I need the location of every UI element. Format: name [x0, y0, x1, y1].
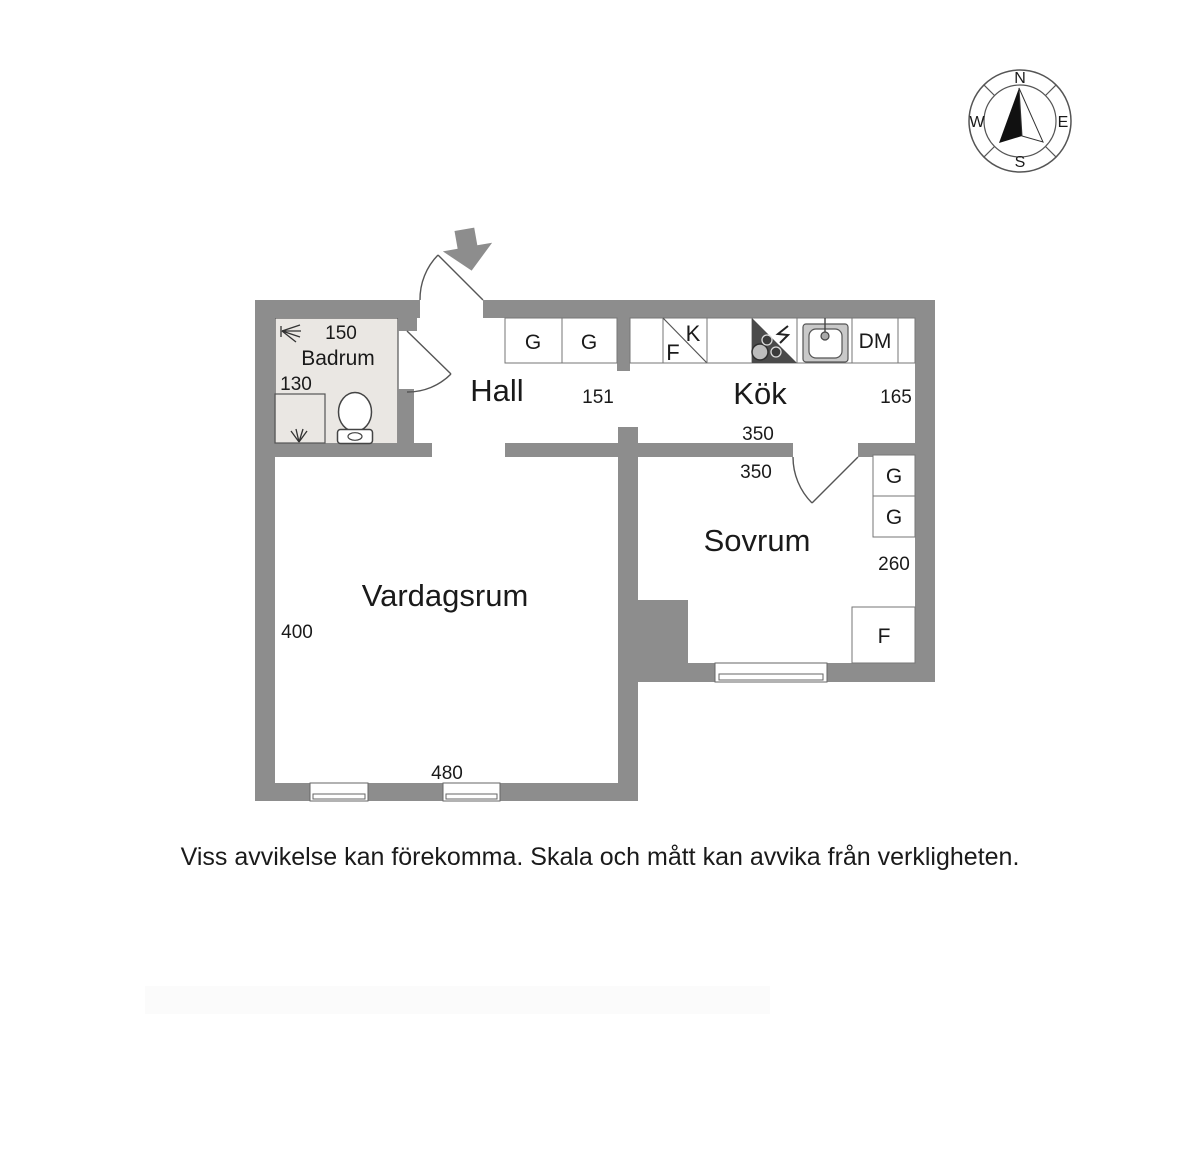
counter-segment-3	[898, 318, 915, 363]
bedroom-wardrobe-1-label: G	[886, 465, 902, 488]
wall-top-right	[483, 300, 935, 318]
wall-bathroom-south	[255, 443, 432, 457]
kitchen-width-dim: 350	[742, 424, 774, 445]
wall-bathroom-east-lower	[398, 389, 414, 445]
toilet-icon	[338, 393, 373, 444]
hall-label: Hall	[470, 373, 523, 408]
counter-segment-1	[630, 318, 663, 363]
wall-right	[915, 318, 935, 682]
compass-north-label: N	[1014, 70, 1026, 87]
entry-door-arc	[420, 255, 438, 300]
living-room-window-2	[443, 783, 500, 801]
wall-counter-stub	[617, 318, 630, 371]
bedroom-depth-dim: 260	[878, 554, 910, 575]
bedroom-door-leaf	[812, 457, 858, 503]
bedroom-wardrobe-2-label: G	[886, 506, 902, 529]
bathroom-width-dim: 150	[325, 323, 357, 344]
fridge-label: K	[686, 321, 701, 346]
wall-bedroom-notch	[638, 600, 688, 663]
compass-south-label: S	[1015, 154, 1026, 171]
hall-wardrobe-1-label: G	[525, 331, 541, 354]
bedroom-label: Sovrum	[704, 523, 811, 558]
wall-bathroom-door-stub	[398, 318, 417, 331]
kitchen-label: Kök	[733, 376, 787, 411]
hall-wardrobe-2-label: G	[581, 331, 597, 354]
bedroom-width-dim: 350	[740, 462, 772, 483]
bathroom-depth-dim: 130	[280, 374, 312, 395]
bedroom-window	[715, 663, 827, 682]
compass-west-label: W	[969, 114, 985, 131]
kitchen-depth-dim: 165	[880, 387, 912, 408]
windows	[310, 663, 827, 801]
freezer-label: F	[666, 340, 679, 365]
bedroom-door-arc	[793, 457, 812, 503]
dishwasher-label: DM	[859, 330, 892, 353]
bathroom-label: Badrum	[301, 347, 375, 370]
wall-hall-kitchen-south	[505, 443, 793, 457]
entry-arrow-icon	[440, 225, 497, 275]
living-room-window-1	[310, 783, 368, 801]
kitchen-counters	[505, 318, 915, 363]
bathroom-door-leaf	[407, 331, 451, 374]
living-room-label: Vardagsrum	[362, 578, 529, 613]
faint-bottom-strip	[145, 986, 770, 1014]
compass-east-label: E	[1058, 114, 1069, 131]
wall-divider-living-bedroom	[618, 427, 638, 783]
living-room-depth-dim: 400	[281, 622, 313, 643]
stove-icon	[752, 318, 797, 363]
sink-icon	[797, 318, 852, 363]
bedroom-closet-label: F	[878, 625, 891, 648]
counter-segment-2	[707, 318, 752, 363]
hall-width-dim: 151	[582, 387, 614, 408]
floor-plan-page: N W E S Hall Kök Sovrum Vardagsrum Badru…	[0, 0, 1200, 1166]
compass-rose: N W E S	[969, 70, 1071, 172]
wall-left	[255, 318, 275, 801]
wall-top-left	[255, 300, 420, 318]
living-room-width-dim: 480	[431, 763, 463, 784]
disclaimer-text: Viss avvikelse kan förekomma. Skala och …	[0, 843, 1200, 872]
